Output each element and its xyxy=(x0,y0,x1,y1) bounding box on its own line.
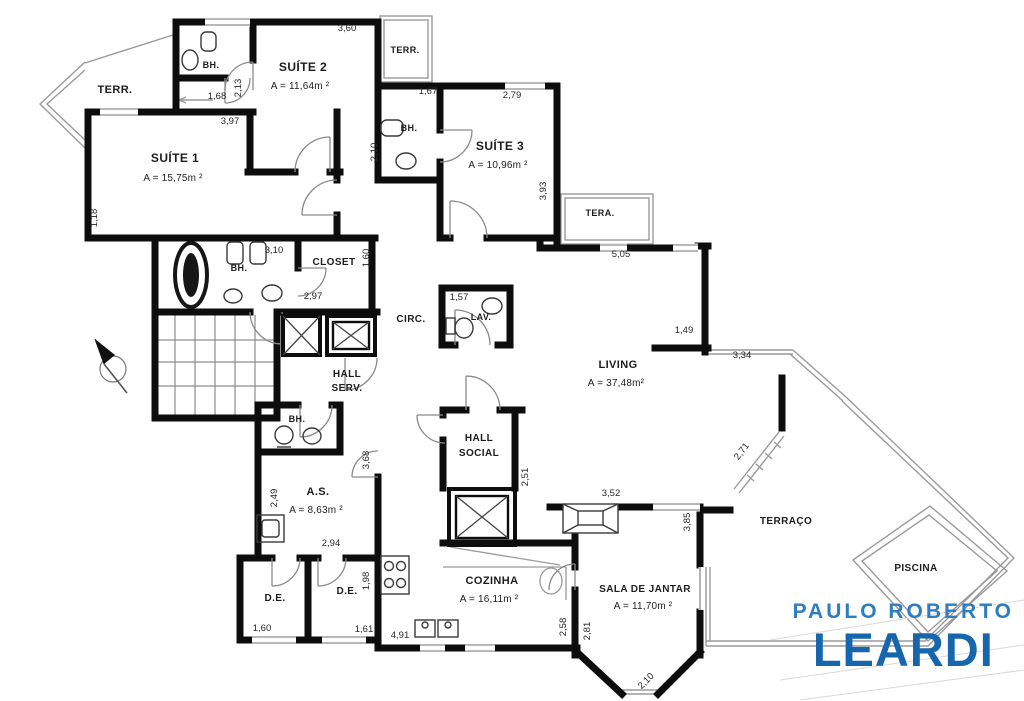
dim-1-18-label: 1,18 xyxy=(89,209,100,228)
dim-2-10-bh3-label: 2,10 xyxy=(369,143,380,162)
dim-3-52-label: 3,52 xyxy=(602,488,621,499)
living-name-label: LIVING xyxy=(598,359,637,371)
dim-3-34-label: 3,34 xyxy=(733,350,752,361)
floorplan-drawing: TERR.BH.SUÍTE 2A = 11,64m ²TERR.SUÍTE 1A… xyxy=(0,0,1024,701)
piscina-label: PISCINA xyxy=(894,563,937,574)
terr-left-label: TERR. xyxy=(98,84,133,96)
suite3-area-label: A = 10,96m ² xyxy=(468,160,528,171)
de-2-label: D.E. xyxy=(336,586,357,597)
hall-social-line2-label: SOCIAL xyxy=(459,448,499,459)
hall-social-line1-label: HALL xyxy=(465,433,493,444)
bathtub-icon xyxy=(175,243,207,307)
dim-5-05-label: 5,05 xyxy=(612,249,631,260)
bh-as-label: BH. xyxy=(289,414,306,424)
suite2-name-label: SUÍTE 2 xyxy=(279,59,327,74)
closet-label: CLOSET xyxy=(313,257,356,268)
tera-right-label: TERA. xyxy=(586,208,615,218)
terr-top-label: TERR. xyxy=(391,45,420,55)
suite2-area-label: A = 11,64m ² xyxy=(271,81,330,92)
dim-1-49-label: 1,49 xyxy=(675,325,694,336)
dim-2-79-label: 2,79 xyxy=(503,90,522,101)
stairs xyxy=(158,315,274,415)
suite1-name-label: SUÍTE 1 xyxy=(151,150,199,165)
logo-name-top: PAULO ROBERTO xyxy=(793,601,1014,623)
dim-3-85-label: 3,85 xyxy=(682,513,693,532)
dim-2-81-label: 2,81 xyxy=(582,622,593,641)
labels-layer: TERR.BH.SUÍTE 2A = 11,64m ²TERR.SUÍTE 1A… xyxy=(89,23,938,692)
dim-2-51-label: 2,51 xyxy=(520,468,531,487)
as-name-label: A.S. xyxy=(307,486,330,498)
kitchen-counter xyxy=(443,547,566,600)
cozinha-area-label: A = 16,11m ² xyxy=(460,594,519,605)
dim-2-49-label: 2,49 xyxy=(269,489,280,508)
hall-serv-line2-label: SERV. xyxy=(332,383,363,394)
agency-logo: PAULO ROBERTO LEARDI xyxy=(793,601,1014,674)
dim-4-91-label: 4,91 xyxy=(391,630,410,641)
dim-2-13-label: 2,13 xyxy=(233,79,244,98)
barbecue-icon xyxy=(563,504,618,533)
dim-1-98-label: 1,98 xyxy=(361,572,372,591)
cozinha-name-label: COZINHA xyxy=(466,575,519,587)
dim-2-10-sala-label: 2,10 xyxy=(636,671,657,692)
circ-label: CIRC. xyxy=(396,314,425,325)
dim-2-94-label: 2,94 xyxy=(322,538,341,549)
dim-3-68-label: 3,68 xyxy=(361,451,372,470)
dim-3-93-label: 3,93 xyxy=(538,182,549,201)
floorplan-canvas: TERR.BH.SUÍTE 2A = 11,64m ²TERR.SUÍTE 1A… xyxy=(0,0,1024,701)
dim-1-61-de-label: 1,61 xyxy=(355,624,374,635)
dim-1-57-label: 1,57 xyxy=(450,292,469,303)
kitchen-sink-icons xyxy=(415,620,458,637)
hall-serv-line1-label: HALL xyxy=(333,369,361,380)
de-1-label: D.E. xyxy=(264,593,285,604)
dim-1-67-label: 1,67 xyxy=(419,86,438,97)
dim-1-60-closet-label: 1,60 xyxy=(361,249,372,268)
living-area-label: A = 37,48m² xyxy=(588,378,645,389)
terraco-label: TERRAÇO xyxy=(760,516,812,527)
logo-name-bottom: LEARDI xyxy=(793,625,1014,674)
suite1-area-label: A = 15,75m ² xyxy=(143,173,203,184)
north-arrow-icon xyxy=(95,339,127,393)
dim-1-60-de-label: 1,60 xyxy=(253,623,272,634)
dim-2-58-label: 2,58 xyxy=(558,618,569,637)
sala-area-label: A = 11,70m ² xyxy=(614,601,673,612)
dim-2-71-label: 2,71 xyxy=(732,441,752,462)
as-area-label: A = 8,63m ² xyxy=(289,505,343,516)
bh-main-label: BH. xyxy=(231,263,248,273)
terrace-outlines xyxy=(40,16,1014,694)
bh-suite2-label: BH. xyxy=(203,60,220,70)
dim-2-97-label: 2,97 xyxy=(304,291,323,302)
dim-3-10-label: 3,10 xyxy=(265,245,284,256)
suite3-name-label: SUÍTE 3 xyxy=(476,138,524,153)
dim-1-68-label: 1,68 xyxy=(208,91,227,102)
dim-3-60-label: 3,60 xyxy=(338,23,357,34)
bh-suite3-label: BH. xyxy=(401,123,418,133)
lav-label: LAV. xyxy=(471,312,492,322)
dim-3-97-label: 3,97 xyxy=(221,116,240,127)
bh-as-fixtures xyxy=(275,426,321,447)
sala-name-label: SALA DE JANTAR xyxy=(599,584,691,595)
stove-icon xyxy=(381,556,409,594)
